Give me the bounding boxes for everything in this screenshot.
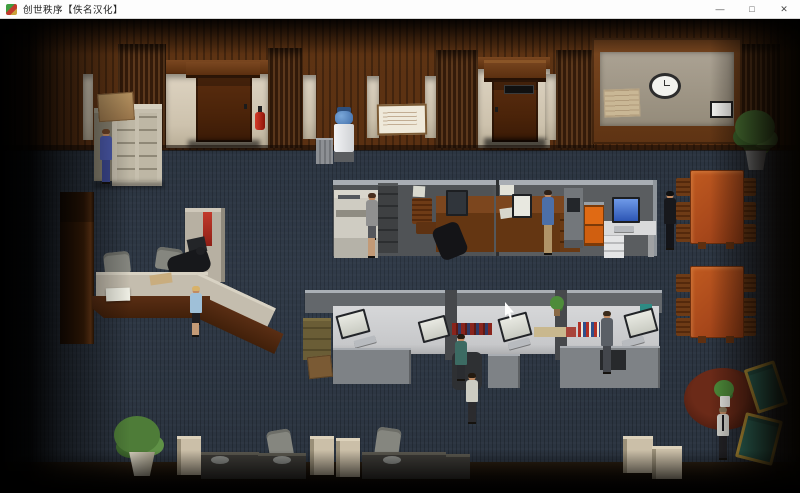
plant-foliage	[550, 296, 564, 310]
water-bottle	[335, 111, 353, 125]
white-desk[interactable]	[604, 197, 656, 258]
wall-inset	[545, 74, 556, 140]
drawer	[585, 207, 603, 224]
cubicle-panel	[333, 348, 411, 384]
notice-board[interactable]	[377, 104, 428, 136]
cooler-base	[334, 152, 354, 162]
carrel-desk[interactable]	[446, 454, 470, 479]
table-leg	[698, 336, 706, 343]
drawer-column	[117, 113, 135, 181]
olive-cabinet[interactable]	[303, 318, 331, 360]
minimize-button[interactable]: —	[704, 0, 736, 18]
titlebar[interactable]: 创世秩序【佚名汉化】 — □ ✕	[0, 0, 800, 19]
wall-clock[interactable]	[649, 73, 681, 99]
wood-chair[interactable]	[412, 198, 432, 224]
privacy-panel	[310, 436, 334, 475]
maximize-button[interactable]: □	[736, 0, 768, 18]
shelf-items	[534, 327, 576, 337]
chair-seat-top	[383, 456, 401, 464]
water-cooler[interactable]	[332, 107, 356, 162]
legs-skin	[192, 323, 199, 337]
desk-leg	[648, 235, 654, 257]
table-top	[690, 266, 744, 338]
kiosk-screen	[567, 198, 580, 212]
door-plaque	[504, 85, 534, 94]
office-door-right[interactable]	[484, 60, 546, 150]
plant-pot	[554, 309, 560, 316]
carrel-desk[interactable]	[362, 452, 446, 479]
books	[578, 322, 600, 337]
upper-cubicle-row	[333, 180, 657, 262]
clock-hand	[664, 85, 670, 86]
lounge-area	[680, 360, 790, 470]
wall-plant[interactable]	[731, 108, 779, 172]
orange-cabinet[interactable]	[584, 202, 604, 246]
wall-inset	[303, 75, 316, 139]
privacy-panel	[652, 446, 682, 479]
keyboard	[614, 226, 634, 232]
desk-monitor	[512, 194, 532, 218]
wall-pillar	[556, 50, 594, 148]
notice-text-lines	[383, 111, 417, 126]
cardboard-box[interactable]	[97, 92, 135, 122]
plant-pot	[128, 452, 156, 476]
display-wall-panel	[592, 38, 742, 144]
dark-cabinet[interactable]	[378, 183, 398, 253]
drawer-column	[139, 113, 157, 181]
window-title: 创世秩序【佚名汉化】	[23, 2, 123, 16]
kiosk-terminal[interactable]	[564, 188, 583, 248]
cubicle-panel	[488, 354, 520, 388]
privacy-panel	[336, 438, 360, 477]
pinned-paper	[413, 186, 426, 198]
privacy-panel	[623, 436, 653, 473]
fire-extinguisher[interactable]	[254, 106, 266, 130]
privacy-panel	[177, 436, 201, 475]
trash-can[interactable]	[316, 138, 333, 164]
table-leg	[726, 336, 734, 343]
drawer-unit	[604, 235, 624, 258]
receptionist-head	[196, 247, 205, 255]
game-icon	[6, 4, 17, 15]
wall-pillar	[436, 50, 478, 148]
necktie	[722, 415, 724, 431]
posted-paper[interactable]	[106, 288, 130, 302]
drawer	[585, 226, 603, 243]
door-knob[interactable]	[495, 107, 498, 112]
conference-table-2[interactable]	[676, 262, 760, 348]
conference-table-1[interactable]	[676, 166, 760, 254]
chair-seat-top	[211, 456, 229, 464]
table-leg	[698, 242, 706, 249]
table-leg	[726, 242, 734, 249]
game-window: 创世秩序【佚名汉化】 — □ ✕	[0, 0, 800, 493]
chair-seat-top	[273, 456, 291, 464]
door-crown	[484, 60, 546, 82]
floor-plant[interactable]	[112, 416, 168, 480]
legs-skin	[368, 238, 375, 258]
door-knob[interactable]	[244, 104, 247, 109]
office-door-left[interactable]	[186, 62, 260, 150]
close-button[interactable]: ✕	[768, 0, 800, 18]
wall-inset	[83, 74, 93, 140]
wall-map[interactable]	[604, 88, 641, 117]
desk-monitor	[446, 190, 468, 216]
plant-foliage	[735, 110, 775, 144]
extinguisher-body	[255, 112, 265, 130]
carrel-desk[interactable]	[201, 452, 259, 479]
monitor-blue	[612, 197, 640, 223]
copier-controls	[338, 195, 360, 199]
carrel-row	[177, 426, 687, 478]
table-top	[690, 170, 744, 244]
framed-sign[interactable]	[710, 101, 733, 118]
door-panel[interactable]	[196, 76, 252, 142]
plant-foliage	[114, 416, 160, 454]
plant-pot	[720, 396, 730, 407]
wall-pillar	[268, 48, 302, 148]
floor-box[interactable]	[307, 355, 333, 379]
partition-plant[interactable]	[548, 296, 566, 318]
cooler-body	[334, 124, 354, 152]
